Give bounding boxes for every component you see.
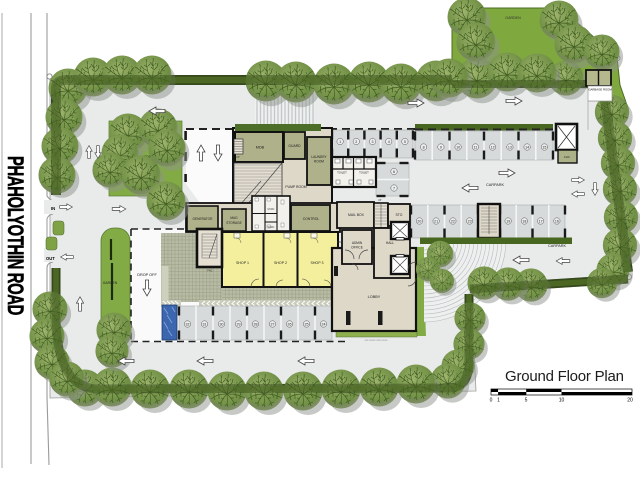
svg-text:UP: UP xyxy=(236,156,240,159)
svg-text:GARDEN: GARDEN xyxy=(103,281,118,285)
svg-text:PUMP ROOM: PUMP ROOM xyxy=(285,185,306,189)
svg-text:GARBAGE ROOM: GARBAGE ROOM xyxy=(588,88,612,92)
svg-text:27: 27 xyxy=(271,322,275,326)
svg-text:20: 20 xyxy=(417,219,421,223)
svg-text:8: 8 xyxy=(423,145,425,149)
svg-text:TOILET: TOILET xyxy=(359,171,369,175)
svg-text:5: 5 xyxy=(404,140,406,144)
svg-text:GARDEN: GARDEN xyxy=(505,16,521,20)
svg-text:CONTROL: CONTROL xyxy=(303,217,320,221)
svg-text:2: 2 xyxy=(355,140,357,144)
svg-text:21: 21 xyxy=(434,219,438,223)
svg-text:LOBBY: LOBBY xyxy=(368,295,381,299)
svg-text:1: 1 xyxy=(497,398,500,404)
svg-text:26: 26 xyxy=(288,322,292,326)
svg-text:Ground Floor Plan: Ground Floor Plan xyxy=(505,368,624,385)
svg-text:ROOM: ROOM xyxy=(314,160,324,164)
svg-text:STORAGE: STORAGE xyxy=(226,221,242,225)
svg-text:28: 28 xyxy=(254,322,258,326)
svg-text:6: 6 xyxy=(393,170,395,174)
svg-text:GUARD: GUARD xyxy=(288,144,301,148)
svg-text:22: 22 xyxy=(451,219,455,223)
svg-text:16: 16 xyxy=(555,219,559,223)
svg-text:HALL: HALL xyxy=(386,241,395,245)
svg-text:FHC: FHC xyxy=(564,155,570,159)
svg-text:32: 32 xyxy=(186,322,190,326)
svg-text:UP: UP xyxy=(378,199,382,202)
svg-text:5: 5 xyxy=(525,398,528,404)
svg-text:14: 14 xyxy=(525,145,529,149)
svg-text:CARPARK: CARPARK xyxy=(486,183,505,187)
svg-text:PHAHOLYOTHIN ROAD: PHAHOLYOTHIN ROAD xyxy=(3,156,28,315)
svg-text:1: 1 xyxy=(339,140,341,144)
svg-text:SHOP 3: SHOP 3 xyxy=(310,261,323,265)
svg-text:DROP OFF: DROP OFF xyxy=(137,273,157,277)
svg-text:13: 13 xyxy=(508,145,512,149)
svg-text:FHC: FHC xyxy=(207,269,212,273)
svg-text:IN: IN xyxy=(51,206,55,211)
svg-text:20: 20 xyxy=(627,398,633,404)
svg-text:4: 4 xyxy=(388,140,390,144)
svg-text:SHOP 2: SHOP 2 xyxy=(274,261,287,265)
svg-text:18: 18 xyxy=(522,219,526,223)
svg-text:19: 19 xyxy=(506,219,510,223)
svg-text:MDB: MDB xyxy=(256,146,265,150)
svg-text:3: 3 xyxy=(372,140,374,144)
svg-text:23: 23 xyxy=(468,219,472,223)
svg-text:ADMIN: ADMIN xyxy=(352,241,363,245)
svg-text:W.WC: W.WC xyxy=(268,226,275,229)
svg-text:10: 10 xyxy=(559,398,565,404)
svg-text:25: 25 xyxy=(305,322,309,326)
svg-text:9: 9 xyxy=(440,145,442,149)
svg-text:SHOP 1: SHOP 1 xyxy=(236,261,249,265)
svg-text:xxx xxxxx xxxx xxxx: xxx xxxxx xxxx xxxx xyxy=(365,339,389,342)
svg-text:GENERATOR: GENERATOR xyxy=(193,217,214,221)
svg-text:STO: STO xyxy=(396,213,403,217)
svg-text:M.WC: M.WC xyxy=(268,208,275,211)
svg-text:DN: DN xyxy=(337,240,341,244)
svg-text:31: 31 xyxy=(203,322,207,326)
svg-text:10: 10 xyxy=(456,145,460,149)
svg-text:OFFICE: OFFICE xyxy=(351,246,363,250)
svg-text:7: 7 xyxy=(393,186,395,190)
svg-text:CARPARK: CARPARK xyxy=(548,244,567,248)
svg-text:15: 15 xyxy=(542,145,546,149)
svg-text:17: 17 xyxy=(539,219,543,223)
svg-text:24: 24 xyxy=(322,322,326,326)
svg-text:TOILET: TOILET xyxy=(337,171,347,175)
svg-text:11: 11 xyxy=(474,145,478,149)
svg-text:LAUNDRY: LAUNDRY xyxy=(311,155,327,159)
svg-text:12: 12 xyxy=(491,145,495,149)
svg-text:30: 30 xyxy=(220,322,224,326)
svg-text:MAG: MAG xyxy=(230,216,238,220)
svg-text:OUT: OUT xyxy=(46,256,55,261)
svg-text:0: 0 xyxy=(490,398,493,404)
svg-text:29: 29 xyxy=(237,322,241,326)
svg-text:MAIL BOX: MAIL BOX xyxy=(348,213,365,217)
